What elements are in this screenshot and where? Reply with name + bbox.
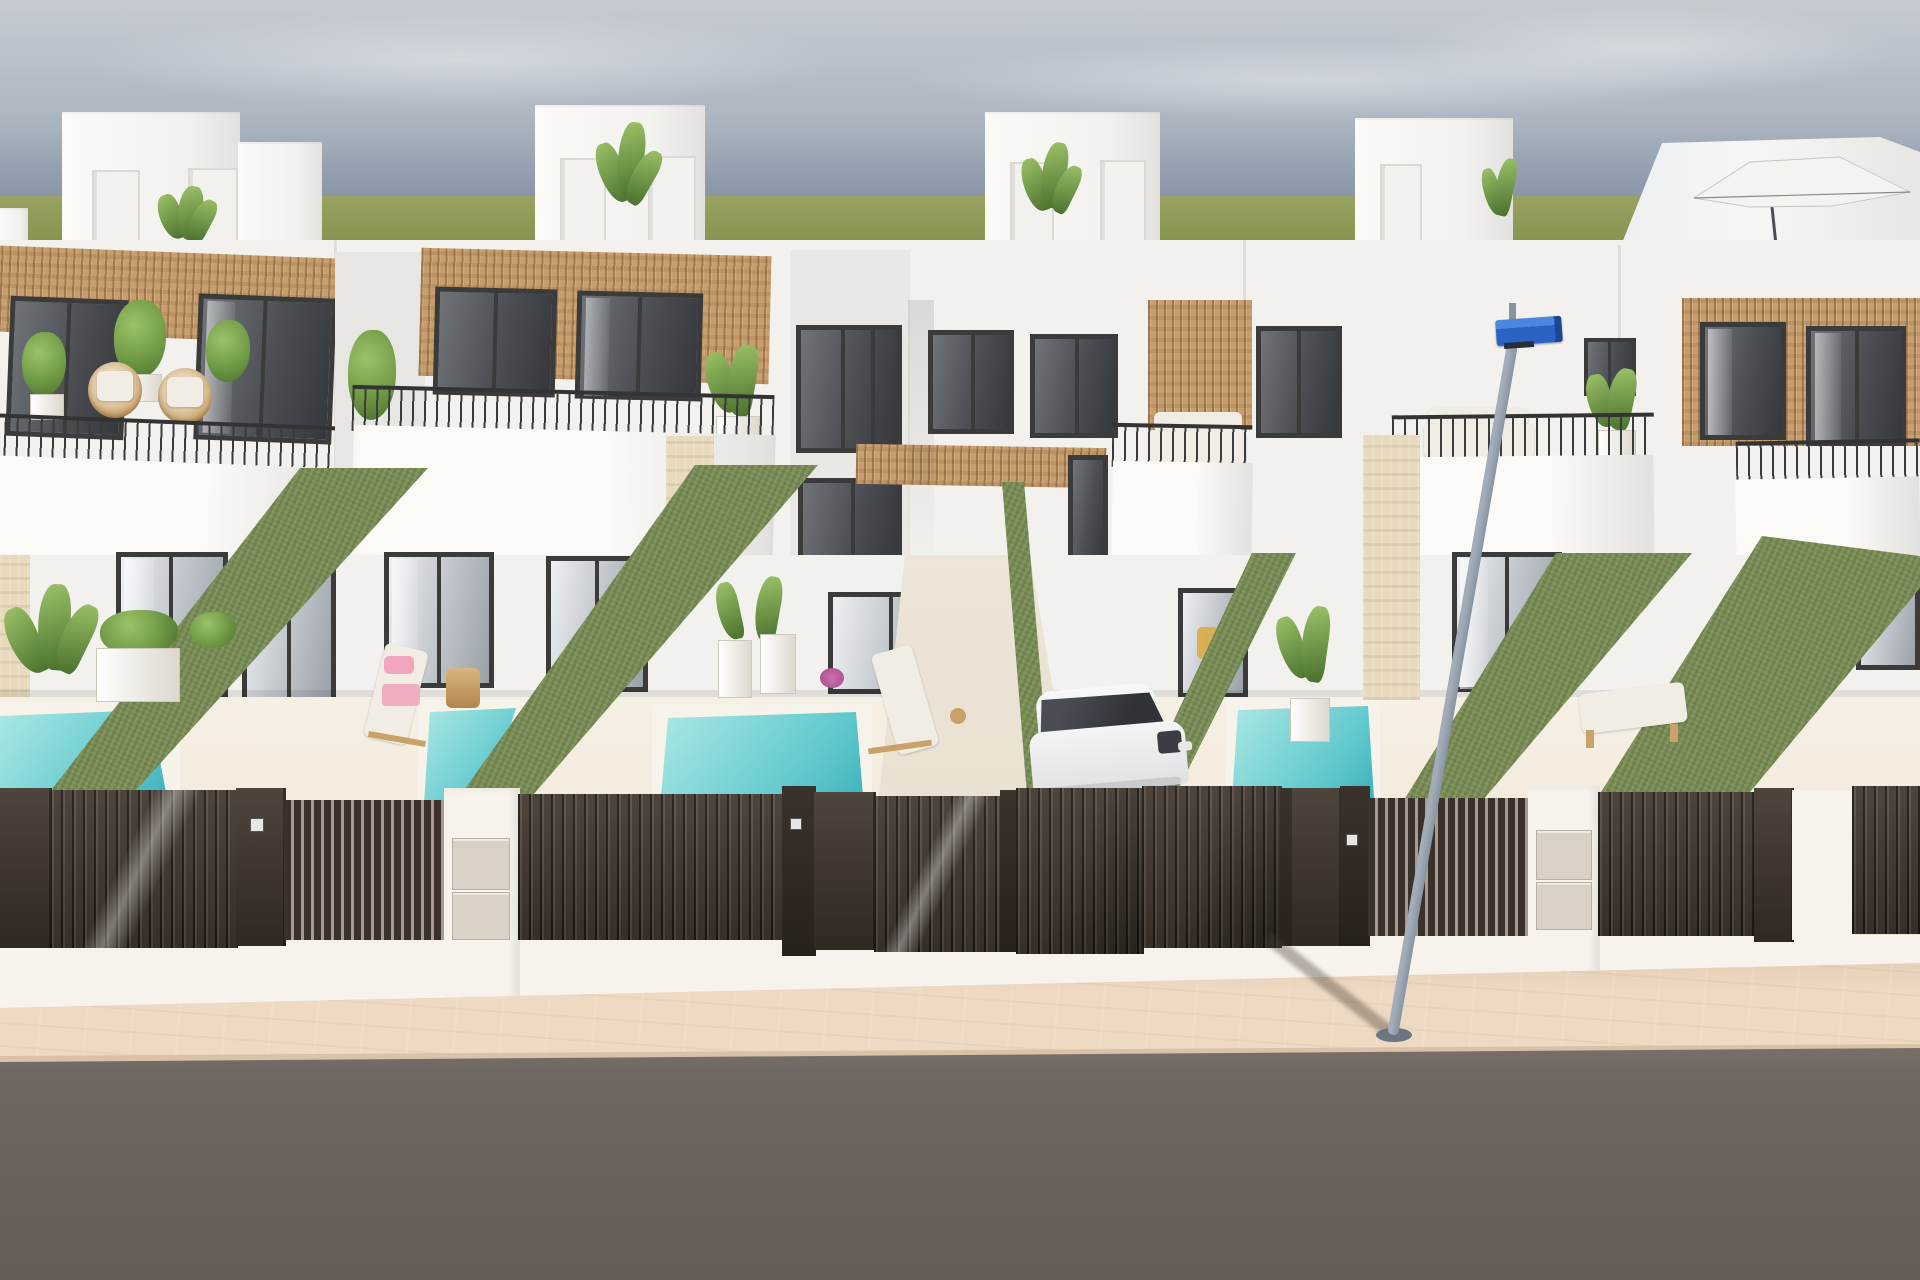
lounger-leg — [1670, 724, 1678, 742]
yard5-lounger — [1574, 672, 1704, 752]
gate-leaf — [236, 788, 286, 946]
gate-sheen — [874, 796, 1002, 952]
yard1-palm — [8, 578, 104, 710]
pink-towel — [382, 684, 420, 706]
plant — [206, 320, 250, 382]
utility-box — [452, 892, 510, 940]
gate-sheen — [50, 790, 238, 948]
planter — [718, 640, 752, 698]
pink-pillow — [384, 656, 414, 674]
villa1-terrace-chair — [158, 368, 212, 424]
yard2-lounger — [360, 644, 490, 754]
villa2-upper-window — [433, 287, 558, 398]
side-table — [446, 668, 480, 708]
slatted-gate — [50, 790, 238, 948]
fence-post — [1340, 786, 1370, 946]
mullion — [1075, 339, 1079, 433]
slat-fence — [1598, 792, 1756, 936]
mullion — [841, 330, 845, 448]
curtain — [584, 298, 610, 397]
rooftop-door — [1100, 160, 1146, 246]
villa4-upper-window — [1806, 326, 1906, 446]
villa3-upper-window — [1030, 334, 1118, 438]
gate-leaf — [0, 788, 52, 948]
slat-fence — [1852, 786, 1920, 934]
roof-plant-3 — [1022, 142, 1082, 245]
driveway-gate — [1142, 786, 1282, 948]
rooftop-door — [1380, 164, 1422, 246]
slat-fence — [1368, 798, 1530, 936]
cloud — [1380, 5, 1900, 95]
gate-lock — [1346, 834, 1358, 846]
villa3-wood-panel — [1148, 300, 1252, 430]
yard3-lounger — [858, 648, 988, 760]
villa3-upper-window — [928, 330, 1014, 434]
yard1-planter — [96, 648, 180, 702]
car-mirror — [1178, 741, 1193, 751]
plant — [22, 332, 66, 396]
road — [0, 1040, 1920, 1280]
fence-wall-segment — [1792, 790, 1854, 940]
slatted-gate — [874, 796, 1002, 952]
gate-lock — [250, 818, 264, 832]
corridor-upper-glazing — [796, 325, 902, 453]
slat-fence — [284, 800, 446, 940]
rooftop-box-1-step — [238, 142, 322, 245]
chair-cushion — [97, 371, 133, 401]
yard3-planters — [712, 576, 812, 712]
parasol — [1680, 140, 1920, 250]
slat-fence — [518, 794, 786, 940]
mullion — [1855, 331, 1859, 441]
gate-leaf — [814, 792, 876, 950]
planter — [1290, 698, 1330, 742]
mullion — [636, 297, 642, 395]
gate-shadow — [1142, 786, 1282, 948]
lounger-leg — [1586, 730, 1594, 748]
parasol-canopy — [1694, 157, 1910, 207]
gate-leaf — [1292, 788, 1342, 946]
gate-lock — [790, 818, 802, 830]
utility-box — [1536, 830, 1592, 880]
chair-cushion — [167, 377, 203, 407]
mullion — [871, 330, 875, 448]
driveway-gate — [1016, 788, 1144, 954]
planter — [760, 634, 796, 694]
roof-plant-2 — [594, 122, 660, 246]
gate-leaf — [1754, 788, 1794, 942]
gate-shadow — [1016, 788, 1144, 954]
curtain — [1815, 333, 1841, 441]
mullion — [971, 335, 975, 429]
villa4-upper-window — [1256, 326, 1342, 438]
villa2-upper-window — [575, 290, 704, 401]
pink-flowers — [820, 668, 844, 688]
fence-post — [782, 786, 816, 956]
utility-box — [1536, 882, 1592, 930]
villa1-terrace-chair — [88, 362, 142, 418]
yard4-plant — [1278, 606, 1342, 746]
architectural-render — [0, 0, 1920, 1280]
roof-plant-1 — [156, 186, 216, 246]
villa4-upper-window — [1700, 322, 1786, 440]
mullion — [492, 293, 498, 391]
villa3-slot-window — [1068, 455, 1108, 570]
leaf — [712, 580, 746, 641]
utility-box — [452, 838, 510, 890]
curtain — [1708, 329, 1732, 435]
cloud — [80, 10, 840, 110]
mullion — [1297, 331, 1301, 433]
rooftop-box-edge — [0, 208, 28, 244]
roof-plant-4 — [1484, 158, 1520, 245]
lounger-wheel — [950, 708, 966, 724]
stone-pier-2 — [1363, 435, 1420, 700]
rooftop-door — [92, 170, 140, 247]
